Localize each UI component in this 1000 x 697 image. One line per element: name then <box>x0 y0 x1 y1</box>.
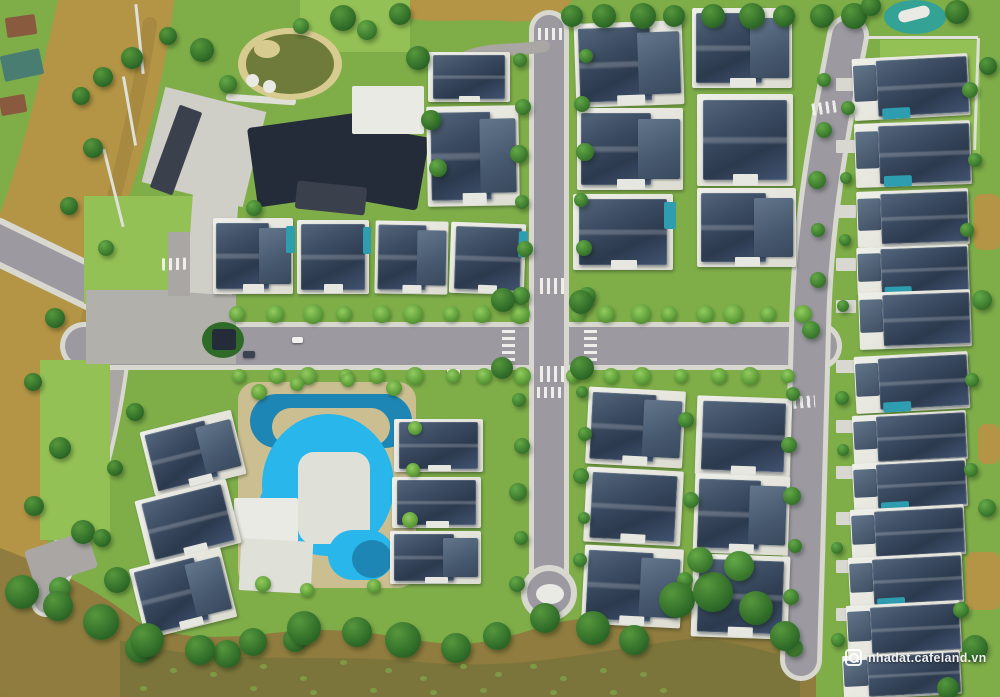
villa-roof <box>872 555 963 605</box>
ground-patch <box>966 552 1000 610</box>
tree <box>816 122 832 138</box>
palm-tree <box>443 306 459 322</box>
crosswalk <box>540 366 566 382</box>
palm-tree <box>232 369 246 383</box>
car <box>243 351 255 358</box>
villa-roof-wing <box>638 119 679 180</box>
lily-pad <box>310 690 317 695</box>
tree <box>773 5 795 27</box>
villa-roof <box>589 471 678 541</box>
crosswalk <box>811 100 836 115</box>
tree <box>687 547 713 573</box>
villa-roof-wing <box>754 198 793 256</box>
villa <box>297 220 369 294</box>
palm-tree <box>510 304 530 324</box>
tree <box>953 602 969 618</box>
tree <box>802 321 820 339</box>
structure <box>352 86 424 134</box>
villa-porch <box>622 455 648 466</box>
villa-pool <box>884 175 912 187</box>
tree <box>24 373 42 391</box>
tree <box>389 3 411 25</box>
palm-tree <box>603 368 619 384</box>
ground-patch <box>974 194 1000 250</box>
crosswalk <box>162 258 188 271</box>
palm-tree <box>631 304 651 324</box>
structure <box>866 36 978 39</box>
villa-porch <box>459 96 480 102</box>
palm-tree <box>255 576 271 592</box>
tree <box>514 531 528 545</box>
palm-tree <box>476 368 492 384</box>
villa-porch <box>324 284 343 293</box>
lily-pad <box>430 690 437 695</box>
villa-roof <box>870 603 961 654</box>
villa-garage-roof <box>853 65 878 102</box>
tree <box>678 412 694 428</box>
tree <box>24 496 44 516</box>
villa <box>850 504 966 560</box>
palm-tree <box>597 305 615 323</box>
tree <box>663 5 685 27</box>
villa-roof <box>876 56 969 116</box>
villa-roof-wing <box>748 486 787 546</box>
villa <box>693 473 791 555</box>
villa-roof <box>703 100 787 181</box>
tree <box>783 589 799 605</box>
tree <box>491 357 513 379</box>
palm-tree <box>373 305 391 323</box>
villa-porch <box>727 627 753 638</box>
villa-roof <box>880 191 969 244</box>
villa <box>134 479 241 566</box>
tree <box>817 73 831 87</box>
watermark-text: nhadat.cafeland.vn <box>868 651 987 665</box>
car <box>292 337 303 343</box>
lily-pad <box>250 686 257 691</box>
palm-tree <box>674 369 688 383</box>
villa <box>139 410 246 497</box>
tree <box>83 604 119 640</box>
tree <box>513 53 527 67</box>
tree <box>429 159 447 177</box>
villa-garage-roof <box>851 515 875 545</box>
lily-pad <box>550 690 557 695</box>
palm-tree <box>369 368 385 384</box>
structure <box>122 76 137 145</box>
villa-roof <box>701 400 787 472</box>
palm-tree <box>229 306 245 322</box>
palm-tree <box>386 380 402 396</box>
palm-tree <box>741 367 759 385</box>
structure <box>263 80 276 93</box>
lily-pad <box>480 688 487 693</box>
tree <box>840 172 852 184</box>
tree <box>573 553 587 567</box>
tree <box>576 611 610 645</box>
lily-pad <box>140 686 147 691</box>
tree <box>592 4 616 28</box>
tree <box>683 492 699 508</box>
tree <box>968 153 982 167</box>
villa-garage-roof <box>857 198 881 231</box>
tree <box>357 20 377 40</box>
villa-porch <box>735 257 761 266</box>
lily-pad <box>300 676 307 681</box>
tree <box>5 575 39 609</box>
structure <box>836 140 856 153</box>
structure <box>352 540 392 578</box>
villa-porch <box>428 465 451 471</box>
watermark: nhadat.cafeland.vn <box>845 649 987 666</box>
tree <box>83 138 103 158</box>
tree <box>837 444 849 456</box>
tree <box>630 3 656 29</box>
tree <box>130 623 164 657</box>
villa-porch <box>617 95 645 106</box>
tree <box>126 403 144 421</box>
tree <box>49 437 71 459</box>
villa-roof <box>579 199 667 266</box>
structure <box>254 40 280 58</box>
lily-pad <box>210 672 217 677</box>
villa-roof-wing <box>443 538 478 577</box>
lily-pad <box>340 660 347 665</box>
lily-pad <box>170 668 177 673</box>
tree <box>219 75 237 93</box>
villa-porch <box>426 521 449 527</box>
tree <box>831 542 843 554</box>
tree <box>60 197 78 215</box>
tree <box>861 0 881 16</box>
tree <box>739 3 765 29</box>
tree <box>104 567 130 593</box>
tree <box>576 386 588 398</box>
lily-pad <box>610 690 617 695</box>
tree <box>107 460 123 476</box>
tree <box>808 171 826 189</box>
tree <box>810 4 834 28</box>
villa <box>854 120 972 188</box>
palm-tree <box>408 421 422 435</box>
tree <box>619 625 649 655</box>
structure <box>0 48 44 82</box>
tree <box>739 591 773 625</box>
villa-pool <box>664 202 676 229</box>
lily-pad <box>600 668 607 673</box>
structure <box>5 14 37 38</box>
tree <box>406 46 430 70</box>
tree <box>964 463 978 477</box>
tree <box>570 356 594 380</box>
tree <box>937 677 959 697</box>
villa-garage-roof <box>847 611 871 642</box>
villa-porch <box>402 284 421 293</box>
palm-tree <box>513 367 531 385</box>
palm-tree <box>266 305 284 323</box>
tree <box>578 427 592 441</box>
tree <box>514 438 530 454</box>
tree <box>659 582 695 618</box>
tree <box>517 241 533 257</box>
tree <box>578 512 590 524</box>
villa <box>695 395 793 477</box>
palm-tree <box>336 306 352 322</box>
palm-tree <box>403 304 423 324</box>
villa <box>852 410 968 465</box>
palm-tree <box>406 463 420 477</box>
lily-pad <box>640 672 647 677</box>
villa <box>428 52 510 102</box>
tree <box>837 300 849 312</box>
lily-pad <box>560 676 567 681</box>
palm-tree <box>251 384 267 400</box>
tree <box>509 576 525 592</box>
tree <box>576 143 594 161</box>
structure <box>295 180 368 215</box>
tree <box>330 5 356 31</box>
magnifier-icon <box>845 649 862 666</box>
lily-pad <box>460 664 467 669</box>
crosswalk <box>538 28 564 40</box>
palm-tree <box>341 373 355 387</box>
tree <box>159 27 177 45</box>
villa-garage-roof <box>859 299 883 333</box>
villa <box>585 387 686 469</box>
tree <box>190 38 214 62</box>
villa-porch <box>463 193 487 205</box>
villa-porch <box>733 174 758 185</box>
tree <box>841 101 855 115</box>
tree <box>93 67 113 87</box>
villa-roof-wing <box>642 399 683 458</box>
tree <box>98 240 114 256</box>
tree <box>441 633 471 663</box>
structure <box>212 329 236 350</box>
palm-tree <box>473 305 491 323</box>
tree <box>960 223 974 237</box>
tree <box>811 223 825 237</box>
villa-pool <box>363 227 372 254</box>
tree <box>421 110 441 130</box>
palm-tree <box>661 306 677 322</box>
crosswalk <box>540 278 566 294</box>
tree <box>810 272 826 288</box>
villa-roof <box>301 224 364 289</box>
structure <box>836 258 856 271</box>
villa <box>848 552 964 608</box>
tree <box>93 529 111 547</box>
tree <box>781 437 797 453</box>
tree <box>512 393 526 407</box>
lily-pad <box>420 676 427 681</box>
palm-tree <box>723 304 743 324</box>
tree <box>71 520 95 544</box>
villa-roof <box>433 55 505 99</box>
tree <box>509 483 527 501</box>
palm-tree <box>696 305 714 323</box>
villa-pool <box>286 226 296 253</box>
villa-garage-roof <box>855 131 879 169</box>
tree <box>693 572 733 612</box>
palm-tree <box>367 579 381 593</box>
tree <box>576 240 592 256</box>
tree <box>972 290 992 310</box>
tree <box>788 539 802 553</box>
tree <box>515 195 529 209</box>
tree <box>121 47 143 69</box>
villa <box>856 188 970 248</box>
tree <box>246 200 262 216</box>
tree <box>574 96 590 112</box>
palm-tree <box>633 367 651 385</box>
tree <box>978 499 996 517</box>
palm-tree <box>402 512 418 528</box>
villa <box>583 467 684 547</box>
palm-tree <box>760 306 776 322</box>
palm-tree <box>290 377 304 391</box>
villa-roof-wing <box>417 231 446 286</box>
tree <box>962 82 978 98</box>
tree <box>573 468 589 484</box>
tree <box>287 611 321 645</box>
villa <box>697 94 793 186</box>
palm-tree <box>711 368 727 384</box>
palm-tree <box>300 583 314 597</box>
villa <box>854 351 971 414</box>
villa <box>851 53 970 121</box>
villa-pool <box>883 401 911 412</box>
palm-tree <box>303 304 323 324</box>
ground-patch <box>978 424 1000 464</box>
villa <box>573 194 673 270</box>
tree <box>979 57 997 75</box>
tree <box>783 487 801 505</box>
structure <box>0 94 27 116</box>
villa-porch <box>425 577 449 583</box>
structure <box>836 205 856 218</box>
villa <box>697 188 796 267</box>
villa-garage-roof <box>858 253 881 282</box>
villa-porch <box>730 78 756 88</box>
villa <box>858 289 972 350</box>
villa-roof-wing <box>637 31 681 95</box>
palm-tree <box>406 367 424 385</box>
tree <box>385 622 421 658</box>
villa <box>449 222 526 296</box>
tree <box>239 628 267 656</box>
villa-porch <box>617 179 645 189</box>
tree <box>43 591 73 621</box>
villa <box>856 244 970 296</box>
lily-pad <box>260 664 267 669</box>
tree <box>770 621 800 651</box>
villa <box>574 20 685 108</box>
structure <box>234 498 298 542</box>
tree <box>965 373 979 387</box>
structure <box>536 584 564 604</box>
tree <box>342 617 372 647</box>
tree <box>45 308 65 328</box>
villa-roof <box>874 507 965 557</box>
villa-garage-roof <box>853 469 877 498</box>
palm-tree <box>446 369 460 383</box>
tree <box>831 633 845 647</box>
scene-layer <box>0 0 1000 697</box>
tree <box>574 193 588 207</box>
villa-porch <box>620 534 646 544</box>
tree <box>945 0 969 24</box>
tree <box>561 5 583 27</box>
tree <box>530 603 560 633</box>
tree <box>786 387 800 401</box>
villa-garage-roof <box>849 563 873 593</box>
villa-roof <box>876 413 967 462</box>
tree <box>515 99 531 115</box>
tree <box>835 391 849 405</box>
tree <box>293 18 309 34</box>
tree <box>724 551 754 581</box>
villa <box>213 218 293 294</box>
palm-tree <box>269 368 285 384</box>
villa-roof <box>882 292 971 346</box>
lily-pad <box>530 664 537 669</box>
crosswalk <box>537 387 565 398</box>
lily-pad <box>660 688 667 693</box>
tree <box>839 234 851 246</box>
tree <box>72 87 90 105</box>
structure <box>246 74 259 87</box>
villa-roof <box>453 226 521 291</box>
tree <box>510 145 528 163</box>
tree <box>213 640 241 668</box>
lily-pad <box>385 668 392 673</box>
lily-pad <box>370 688 377 693</box>
villa-porch <box>611 260 637 269</box>
tree <box>579 49 593 63</box>
lily-pad <box>495 672 502 677</box>
villa <box>374 220 448 294</box>
tree <box>483 622 511 650</box>
tree <box>569 290 593 314</box>
villa-garage-roof <box>855 363 879 397</box>
villa <box>390 531 481 584</box>
villa-pool <box>882 108 910 120</box>
villa-porch <box>243 284 264 293</box>
tree <box>701 4 725 28</box>
tree <box>491 288 515 312</box>
villa-garage-roof <box>853 421 877 451</box>
tree <box>185 635 215 665</box>
palm-tree <box>781 369 795 383</box>
aerial-photo-villa-compound: nhadat.cafeland.vn <box>0 0 1000 697</box>
